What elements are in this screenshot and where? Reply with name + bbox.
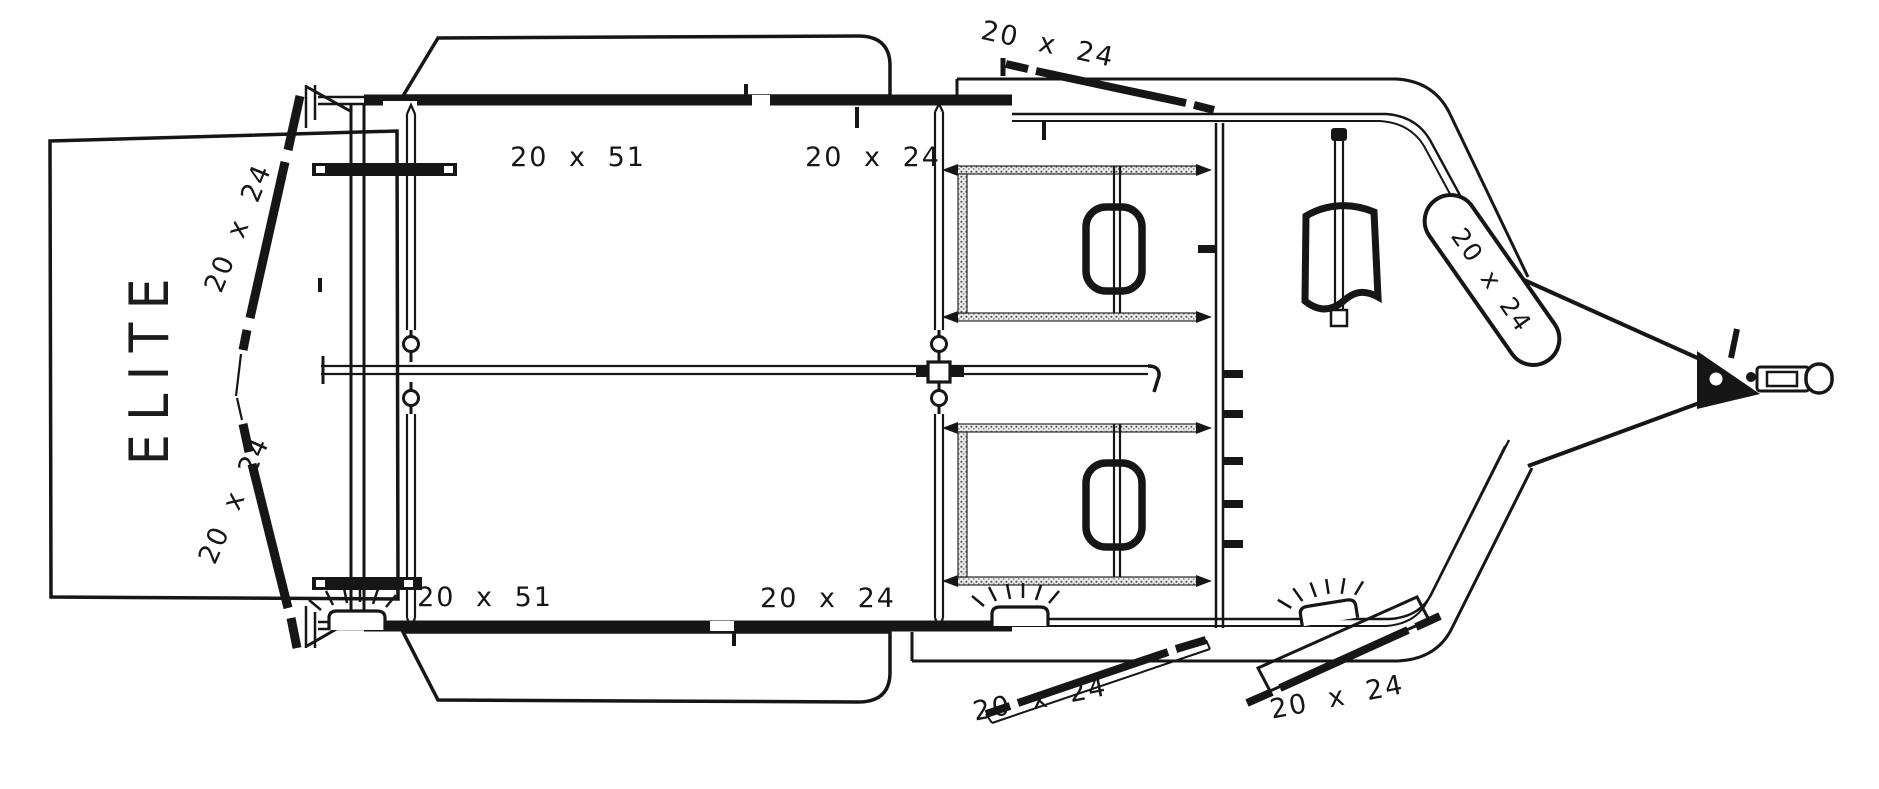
bulkhead-wall [1198,123,1243,628]
floorplan-drawing: ELITE [0,0,1879,789]
hitch-coupler [1697,329,1832,409]
bottom-skirt-panel [403,632,890,702]
stall-slider-bottom [1086,424,1142,577]
mid-window-bottom-label: 20 x 24 [760,583,896,614]
hay-bag [1305,206,1378,309]
rear-window-bottom-label: 20 x 51 [417,582,553,613]
stall-rail [942,422,1212,434]
hitch-tongue [1524,280,1702,466]
rear-window-top-label: 20 x 51 [510,142,646,173]
stall-rail [942,164,1212,176]
rear-window-bar-bottom [312,577,422,590]
stall-rail [942,575,1212,587]
interior-light-front [1276,573,1369,629]
interior-light-middle [972,583,1059,626]
stall-rail [942,311,1212,323]
rear-window-bar-top [312,163,457,176]
top-skirt-panel [403,36,890,96]
trailer-floorplan-diagram: ELITE [0,0,1879,789]
stall-rails [942,164,1212,587]
side-door-bottom-right-label: 20 x 24 [1267,669,1406,725]
stall-slider-top [1086,166,1142,313]
center-divider [321,356,1159,392]
side-door-top-label: 20 x 24 [978,15,1117,74]
side-door-bottom-left-label: 20 x 24 [970,671,1109,727]
brand-text: ELITE [119,265,182,465]
mid-window-top-label: 20 x 24 [805,142,941,173]
nose-window-capsule: 20 x 24 [1414,185,1569,375]
